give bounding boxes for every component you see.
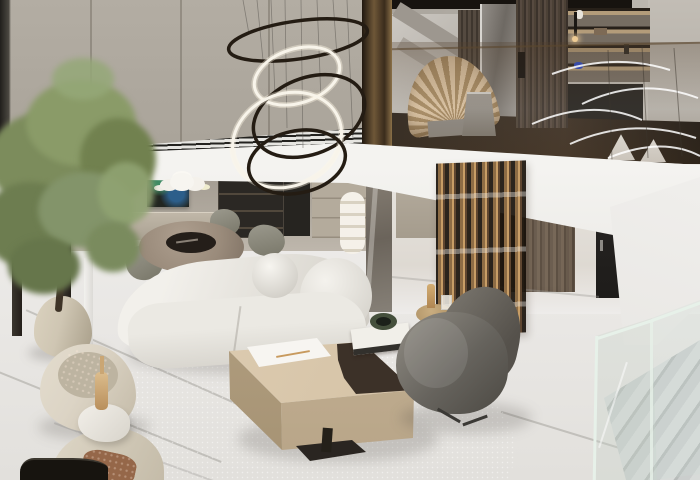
shelf-decor-books: [594, 28, 607, 35]
green-bowl-inner: [376, 317, 391, 326]
table-marble-center: [166, 232, 216, 253]
spiral-stair-reflections: [512, 40, 700, 164]
door-handle: [600, 240, 603, 251]
glass-edge: [650, 320, 653, 480]
ball-cushion: [252, 253, 298, 298]
living-room-render: [0, 0, 700, 480]
amber-bottle: [427, 284, 435, 308]
gray-armchair-highlight: [404, 318, 468, 388]
table-base-stem: [321, 428, 333, 453]
tree-foliage: [8, 238, 80, 294]
black-corner-object: [20, 458, 108, 480]
tree-foliage: [86, 222, 140, 272]
slim-bottle-neck: [100, 356, 104, 374]
wall-panel-seam: [180, 0, 182, 146]
ring-chandelier: [185, 0, 420, 215]
tree-foliage: [98, 162, 154, 224]
pendant-stick-light: [574, 12, 577, 38]
tree-foliage: [52, 58, 114, 100]
shelf-decor-vase: [576, 10, 583, 19]
slim-bottle: [95, 372, 108, 410]
